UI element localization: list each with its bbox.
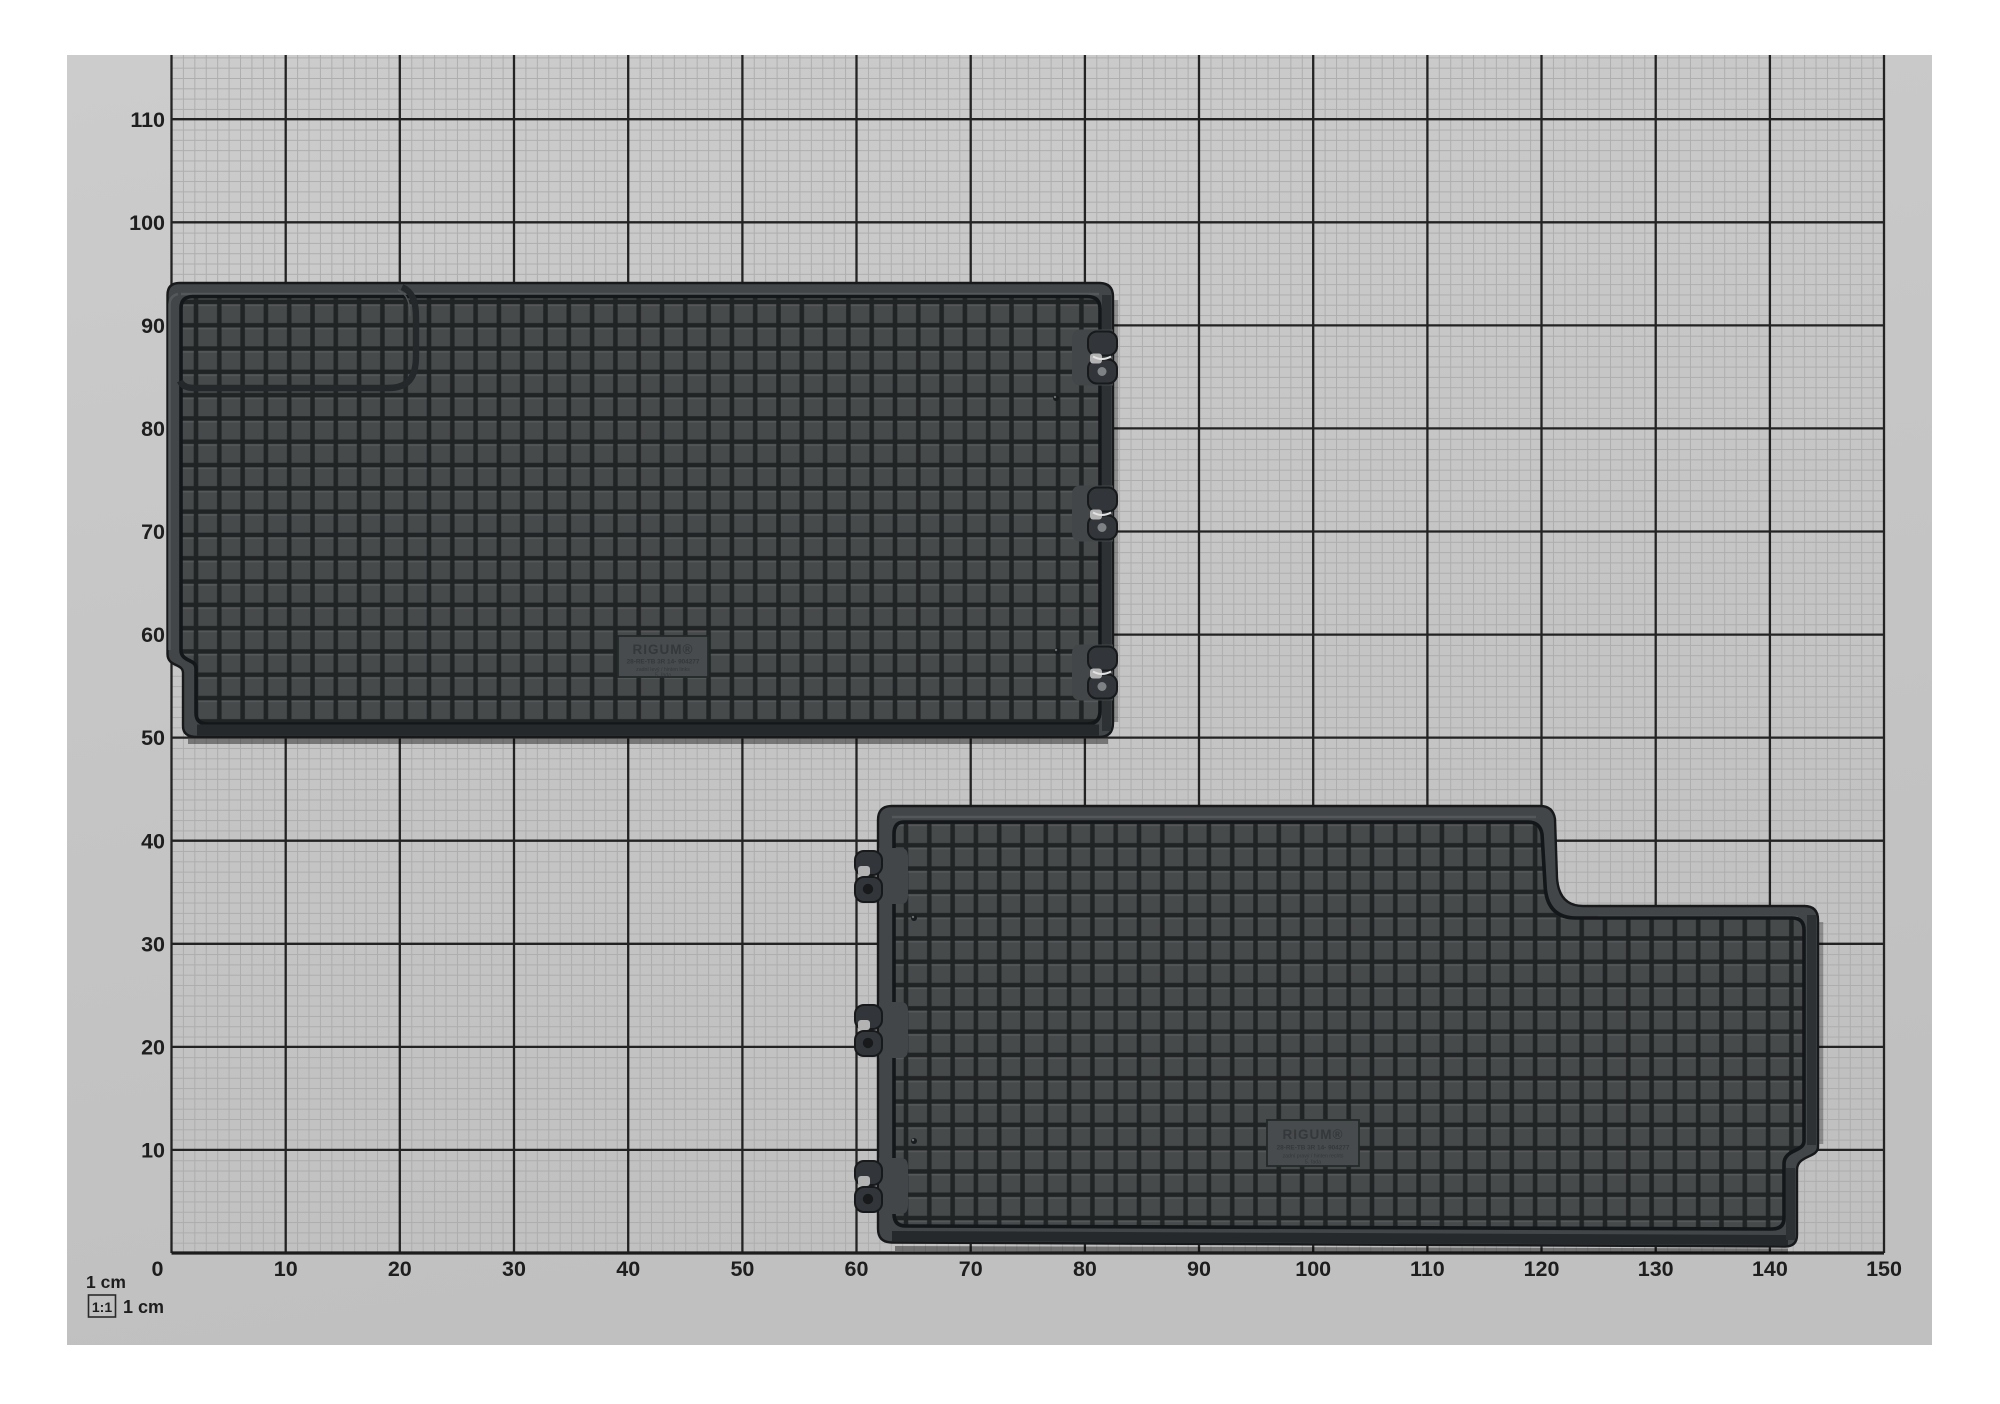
svg-text:RIGUM®: RIGUM® — [633, 642, 694, 657]
svg-text:110: 110 — [130, 108, 165, 132]
svg-text:5. řada: 5. řada — [1305, 1160, 1321, 1166]
svg-text:70: 70 — [141, 520, 165, 544]
svg-text:10: 10 — [274, 1257, 298, 1281]
svg-text:1 cm: 1 cm — [86, 1272, 126, 1292]
svg-text:80: 80 — [141, 417, 165, 441]
svg-text:40: 40 — [616, 1257, 640, 1281]
svg-text:30: 30 — [141, 932, 165, 956]
svg-text:120: 120 — [1524, 1257, 1560, 1281]
svg-text:10: 10 — [141, 1139, 165, 1163]
svg-text:0: 0 — [152, 1257, 164, 1281]
svg-text:20: 20 — [388, 1257, 412, 1281]
svg-text:RIGUM®: RIGUM® — [1283, 1127, 1344, 1142]
svg-text:40: 40 — [141, 829, 165, 853]
svg-text:90: 90 — [141, 314, 165, 338]
svg-text:80: 80 — [1073, 1257, 1097, 1281]
svg-text:20: 20 — [141, 1036, 165, 1060]
svg-text:30: 30 — [502, 1257, 526, 1281]
svg-text:60: 60 — [141, 623, 165, 647]
svg-text:140: 140 — [1752, 1257, 1788, 1281]
svg-text:50: 50 — [141, 726, 165, 750]
svg-text:50: 50 — [730, 1257, 754, 1281]
svg-text:60: 60 — [845, 1257, 869, 1281]
svg-text:100: 100 — [129, 211, 165, 235]
svg-text:1 cm: 1 cm — [123, 1297, 164, 1317]
svg-text:28-RE-TB 3R 14- 904277: 28-RE-TB 3R 14- 904277 — [627, 659, 700, 666]
svg-text:150: 150 — [1866, 1257, 1902, 1281]
svg-text:130: 130 — [1638, 1257, 1674, 1281]
svg-text:1:1: 1:1 — [92, 1299, 112, 1315]
svg-text:70: 70 — [959, 1257, 983, 1281]
svg-text:110: 110 — [1410, 1257, 1445, 1281]
svg-text:90: 90 — [1187, 1257, 1211, 1281]
svg-text:5. řada: 5. řada — [655, 673, 671, 679]
svg-text:28-RE-TB 3R 14- 904277: 28-RE-TB 3R 14- 904277 — [1277, 1145, 1350, 1152]
svg-text:100: 100 — [1295, 1257, 1331, 1281]
